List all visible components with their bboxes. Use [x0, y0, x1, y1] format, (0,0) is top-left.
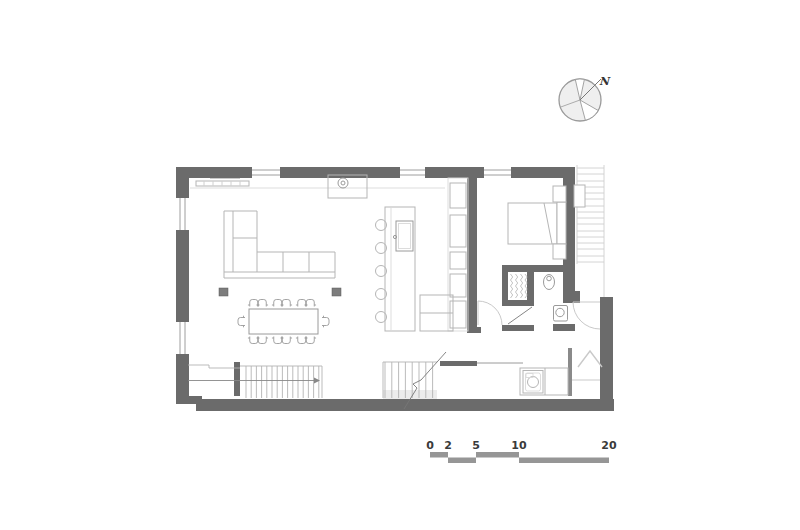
sofa — [224, 211, 335, 278]
scale-label-5: 5 — [472, 439, 480, 452]
dining-table — [249, 309, 318, 334]
washbasin — [554, 306, 568, 322]
wardrobe-closet — [511, 274, 528, 298]
kitchen-counter — [328, 175, 367, 198]
coat-rack — [578, 351, 602, 367]
north-compass: N — [559, 75, 611, 121]
cooktop — [338, 178, 348, 188]
scale-label-0: 0 — [426, 439, 434, 452]
dining-chairs — [238, 300, 329, 344]
scale-bar: 0 2 5 10 20 — [426, 439, 617, 463]
radiator — [196, 179, 249, 187]
entry-door — [573, 302, 600, 329]
nightstand — [553, 186, 566, 202]
kitchen-island — [385, 207, 415, 331]
bed — [508, 186, 566, 259]
toilet — [544, 275, 555, 290]
structural-columns — [219, 288, 341, 296]
main-staircase — [188, 365, 322, 398]
interior-doors — [478, 301, 502, 325]
closet-door-leaf — [508, 307, 532, 324]
scale-label-2: 2 — [444, 439, 452, 452]
scale-label-10: 10 — [511, 439, 527, 452]
exterior-staircase — [574, 165, 604, 297]
north-label: N — [599, 75, 611, 88]
scale-bar-segments — [430, 452, 609, 463]
floor-plan-page: N 0 2 5 10 20 — [0, 0, 800, 530]
scale-label-20: 20 — [601, 439, 617, 452]
wall-cabinets — [420, 178, 468, 331]
floor-plan-drawing: N 0 2 5 10 20 — [0, 0, 800, 530]
laundry-counter — [520, 368, 568, 395]
stair-landing — [574, 185, 585, 207]
nightstand — [553, 244, 566, 259]
